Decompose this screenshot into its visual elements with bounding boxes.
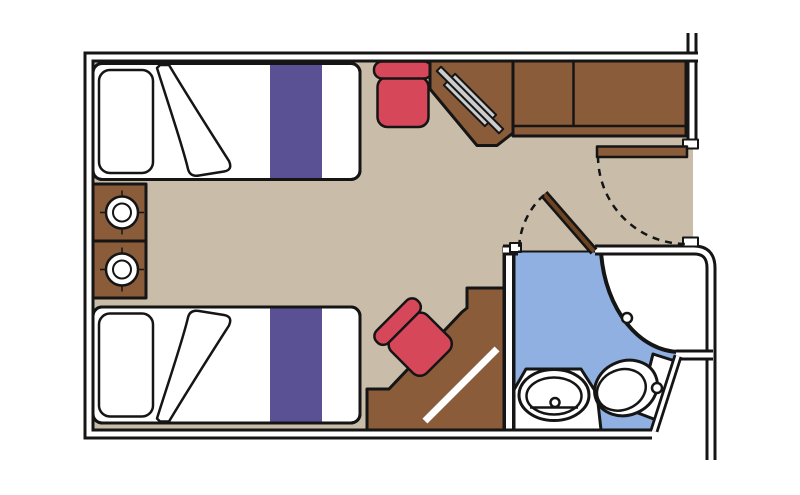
twin-bed-bottom xyxy=(93,307,360,423)
washbasin-drain xyxy=(551,398,560,407)
cabin-floor-plan xyxy=(0,0,800,495)
stool-top xyxy=(374,62,432,128)
wardrobe xyxy=(513,58,686,137)
nightstand-lower xyxy=(92,241,146,298)
shower-drain xyxy=(622,313,632,323)
toilet-flush-button xyxy=(652,383,662,393)
entrance-jamb-bottom xyxy=(683,238,698,247)
entrance-door-leaf xyxy=(597,147,687,158)
floor-plan-canvas xyxy=(0,0,800,495)
nightstand-upper xyxy=(92,184,146,241)
twin-bed-top xyxy=(93,64,360,180)
